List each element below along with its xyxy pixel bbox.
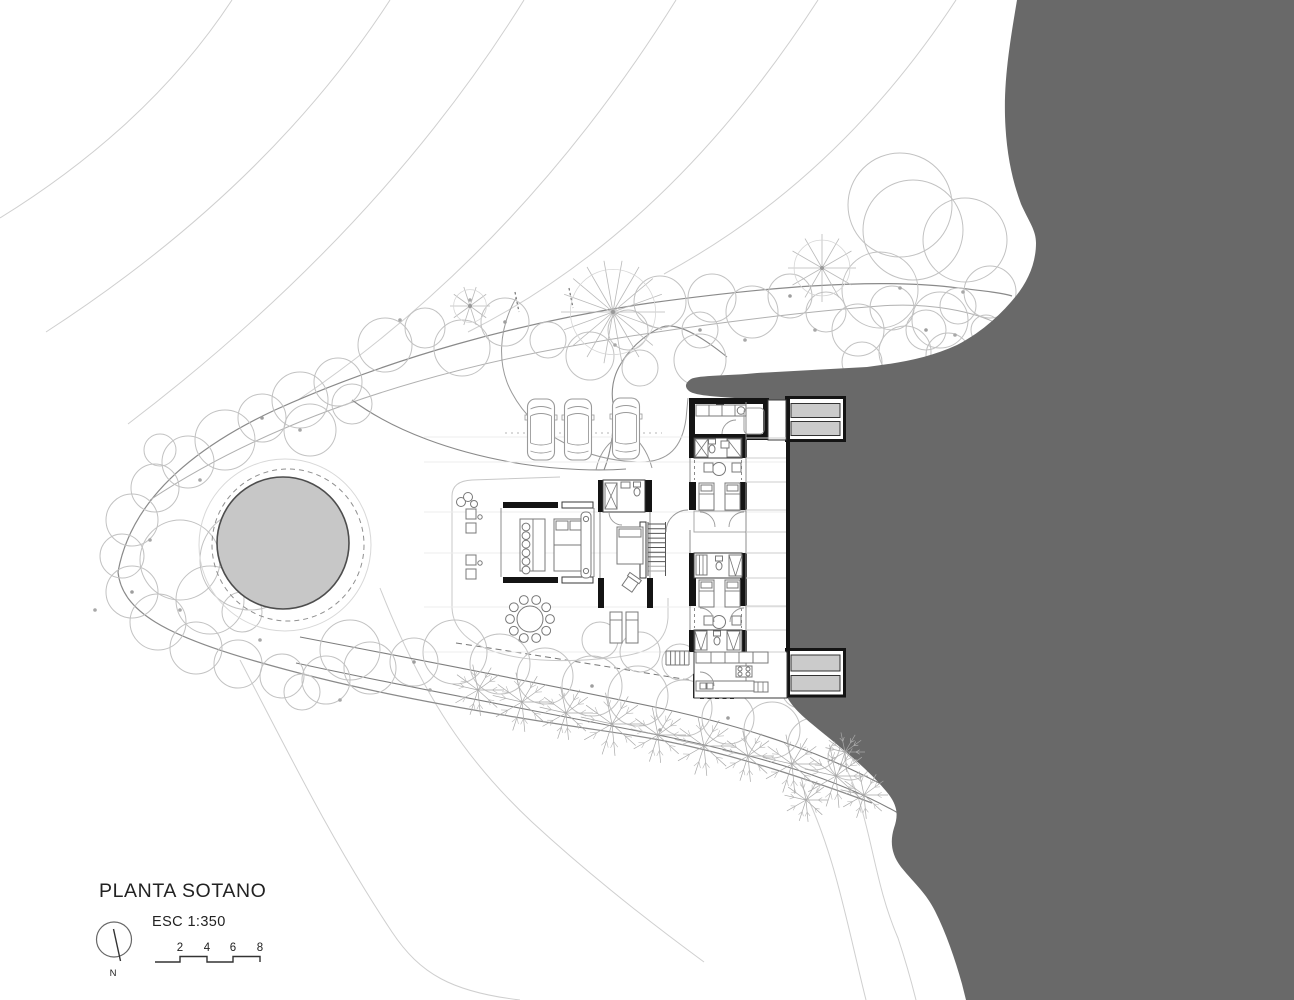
scale-tick-label: 4: [204, 942, 211, 954]
basement-floor-plan: PLANTA SOTANO ESC 1:350 N 2 4 6 8: [0, 0, 1294, 1000]
plan-title: PLANTA SOTANO: [99, 880, 266, 902]
north-label: N: [110, 968, 117, 979]
scale-tick-label: 8: [257, 942, 263, 954]
scale-tick-label: 6: [230, 942, 236, 954]
plan-scale-label: ESC 1:350: [152, 914, 226, 930]
scale-tick-label: 2: [177, 942, 183, 954]
parked-cars: [525, 398, 642, 460]
